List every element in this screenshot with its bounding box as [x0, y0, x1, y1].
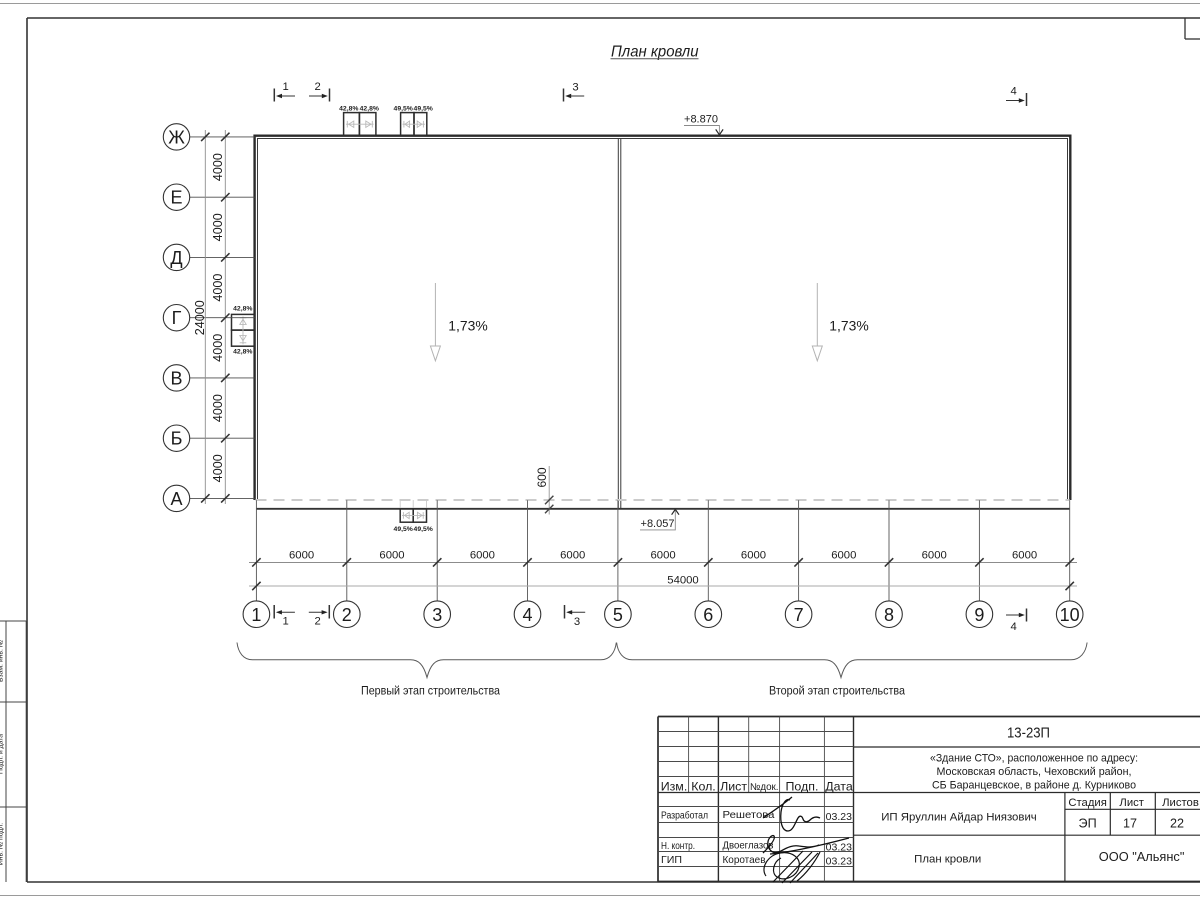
svg-text:2: 2 — [315, 616, 321, 628]
svg-text:Подп. и дата: Подп. и дата — [0, 734, 5, 774]
svg-text:49,5%: 49,5% — [394, 105, 413, 112]
svg-text:Стадия: Стадия — [1068, 797, 1107, 809]
svg-text:42,8%: 42,8% — [233, 306, 252, 313]
svg-text:6000: 6000 — [651, 549, 676, 561]
svg-text:54000: 54000 — [667, 574, 698, 586]
svg-text:4: 4 — [1011, 86, 1017, 98]
svg-text:Г: Г — [172, 308, 182, 328]
svg-text:ГИП: ГИП — [661, 855, 682, 866]
svg-text:Б: Б — [171, 429, 183, 449]
svg-text:600: 600 — [535, 467, 549, 487]
svg-text:4: 4 — [1011, 621, 1017, 633]
svg-text:7: 7 — [794, 605, 804, 625]
svg-text:ООО "Альянс": ООО "Альянс" — [1099, 849, 1185, 864]
svg-text:3: 3 — [572, 82, 578, 94]
svg-text:1: 1 — [283, 81, 289, 93]
svg-text:Кол.: Кол. — [691, 780, 716, 794]
svg-text:17: 17 — [1123, 817, 1137, 831]
svg-text:03.23: 03.23 — [826, 811, 852, 823]
svg-text:42,8%: 42,8% — [360, 105, 379, 112]
svg-text:Подп.: Подп. — [786, 780, 819, 794]
svg-text:4000: 4000 — [211, 274, 225, 302]
svg-text:24000: 24000 — [193, 300, 207, 335]
svg-text:Лист: Лист — [720, 780, 747, 794]
svg-text:03.23: 03.23 — [826, 856, 852, 868]
svg-text:6000: 6000 — [470, 549, 495, 561]
svg-text:+8.057: +8.057 — [641, 518, 675, 530]
svg-text:Ж: Ж — [168, 127, 185, 147]
svg-text:9: 9 — [974, 605, 984, 625]
svg-text:СБ Баранцевское, в районе д. К: СБ Баранцевское, в районе д. Курниково — [932, 780, 1136, 792]
svg-text:+8.870: +8.870 — [684, 114, 718, 126]
svg-text:Московская область, Чеховский: Московская область, Чеховский район, — [937, 766, 1132, 778]
svg-text:4000: 4000 — [211, 394, 225, 422]
svg-text:А: А — [170, 489, 182, 509]
svg-text:№док.: №док. — [750, 782, 779, 793]
svg-text:3: 3 — [432, 605, 442, 625]
svg-text:6000: 6000 — [560, 549, 585, 561]
svg-text:Н. контр.: Н. контр. — [661, 841, 695, 852]
svg-text:2: 2 — [315, 81, 321, 93]
svg-text:6000: 6000 — [741, 549, 766, 561]
svg-text:Взам. инв. №: Взам. инв. № — [0, 640, 5, 682]
svg-text:4000: 4000 — [211, 454, 225, 482]
svg-text:6000: 6000 — [922, 549, 947, 561]
svg-text:4000: 4000 — [211, 153, 225, 181]
svg-text:5: 5 — [613, 605, 623, 625]
svg-text:План кровли: План кровли — [611, 44, 699, 61]
svg-text:4000: 4000 — [211, 334, 225, 362]
svg-text:ЭП: ЭП — [1079, 817, 1097, 831]
svg-text:6000: 6000 — [1012, 549, 1037, 561]
svg-text:42,8%: 42,8% — [233, 349, 252, 356]
svg-text:22: 22 — [1170, 817, 1184, 831]
svg-text:4000: 4000 — [211, 213, 225, 241]
svg-text:Е: Е — [170, 188, 182, 208]
svg-text:6000: 6000 — [831, 549, 856, 561]
svg-text:49,5%: 49,5% — [414, 526, 433, 533]
svg-text:Листов: Листов — [1162, 797, 1199, 809]
svg-text:1: 1 — [283, 616, 289, 628]
svg-text:Второй этап строительства: Второй этап строительства — [769, 683, 905, 697]
svg-text:Д: Д — [170, 248, 182, 268]
svg-text:2: 2 — [342, 605, 352, 625]
svg-text:Разработал: Разработал — [661, 810, 708, 822]
svg-text:В: В — [170, 368, 182, 388]
svg-text:8: 8 — [884, 605, 894, 625]
svg-text:Первый этап строительства: Первый этап строительства — [361, 683, 500, 697]
svg-text:«Здание СТО», расположенное по: «Здание СТО», расположенное по адресу: — [930, 753, 1138, 765]
svg-text:1,73%: 1,73% — [829, 318, 868, 334]
svg-text:49,5%: 49,5% — [394, 526, 413, 533]
svg-text:4: 4 — [522, 605, 532, 625]
svg-text:13-23П: 13-23П — [1007, 726, 1050, 742]
svg-text:6000: 6000 — [379, 549, 404, 561]
svg-text:Дата: Дата — [825, 780, 853, 794]
svg-text:49,5%: 49,5% — [414, 105, 433, 112]
svg-text:42,8%: 42,8% — [339, 105, 358, 112]
svg-text:Инв. № подл.: Инв. № подл. — [0, 823, 5, 865]
svg-text:Коротаев: Коротаев — [723, 855, 766, 866]
svg-text:1: 1 — [251, 605, 261, 625]
svg-text:10: 10 — [1060, 605, 1080, 625]
svg-text:Лист: Лист — [1119, 797, 1144, 809]
svg-text:1,73%: 1,73% — [448, 318, 487, 334]
svg-text:6000: 6000 — [289, 549, 314, 561]
svg-text:6: 6 — [703, 605, 713, 625]
svg-text:Изм.: Изм. — [661, 780, 688, 794]
svg-text:ИП Яруллин Айдар Ниязович: ИП Яруллин Айдар Ниязович — [881, 811, 1037, 823]
svg-text:3: 3 — [574, 616, 580, 628]
svg-text:План кровли: План кровли — [914, 853, 981, 865]
